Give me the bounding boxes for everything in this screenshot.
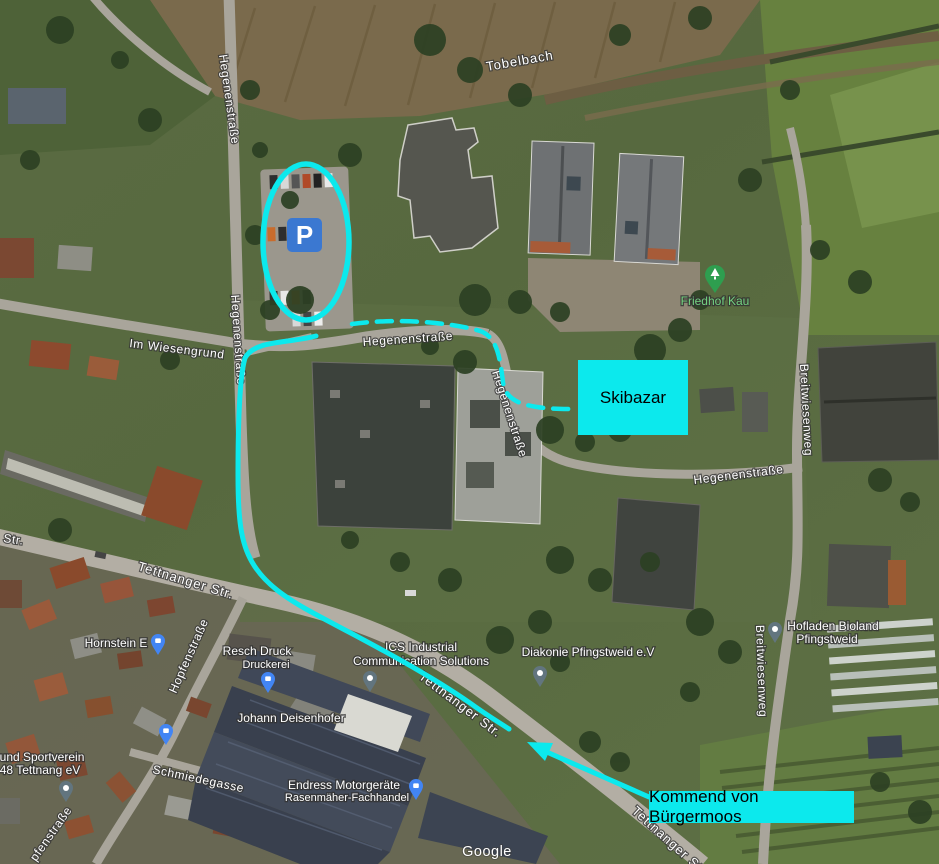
skibazar-label-box: Skibazar [578,360,688,435]
place-pin-icon[interactable] [533,666,547,687]
road-im-wiesengrund [0,303,241,344]
poi-label-ics-line1[interactable]: ICS Industrial [385,640,457,654]
parking-icon: P [287,218,322,252]
poi-label-johann-deisenhofer[interactable]: Johann Deisenhofer [237,711,344,725]
poi-label-hofladen-line2[interactable]: Pfingstweid [796,632,857,646]
building-red-2 [614,153,684,264]
poi-label-sportverein-line2[interactable]: 48 Tettnang eV [0,763,80,777]
poi-label-ics-line2[interactable]: Communication Solutions [353,654,489,668]
skibazar-label: Skibazar [600,388,666,408]
kommend-label: Kommend von Bürgermoos [649,787,854,827]
poi-label-druckerei[interactable]: Druckerei [242,659,289,671]
building-red-1 [528,141,594,255]
satellite-base: Hegenenstraße Hegenenstraße Tobelbach Im… [0,0,939,864]
poi-label-hofladen-line1[interactable]: Hofladen Bioland [787,619,878,633]
street-label-str-partial: Str. [3,531,25,548]
poi-label-endress-line1[interactable]: Endress Motorgeräte [288,778,400,792]
poi-label-diakonie[interactable]: Diakonie Pfingstweid e.V [522,645,655,659]
tree-pin-icon[interactable] [705,265,725,293]
poi-label-sportverein-line1[interactable]: und Sportverein [0,750,84,764]
poi-label-resch-druck[interactable]: Resch Druck [223,644,293,658]
place-pin-icon[interactable] [768,622,782,643]
direction-arrow-head [527,742,553,761]
poi-label-friedhof-kau[interactable]: Friedhof Kau [681,294,750,308]
building-center-dark [312,362,455,530]
annotated-satellite-map: Hegenenstraße Hegenenstraße Tobelbach Im… [0,0,939,864]
building-campus-nw [398,118,498,252]
poi-label-endress-line2[interactable]: Rasenmäher-Fachhandel [285,792,409,804]
google-watermark: Google [462,844,512,860]
poi-label-hornstein[interactable]: Hornstein E [85,636,148,650]
street-label-breitwiesenweg-s: Breitwiesenweg [753,625,770,718]
kommend-label-box: Kommend von Bürgermoos [649,791,854,823]
parking-icon-letter: P [296,220,313,251]
